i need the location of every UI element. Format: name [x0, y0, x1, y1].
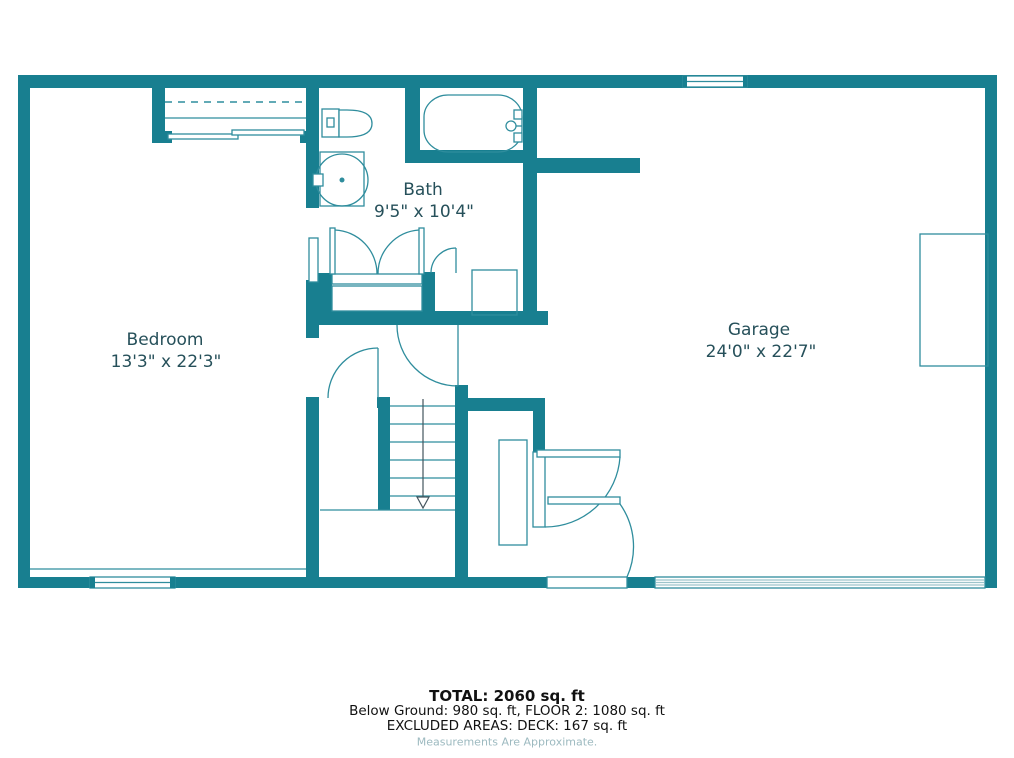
wall-garage-stub	[537, 158, 640, 173]
footer-excluded-areas: EXCLUDED AREAS: DECK: 167 sq. ft	[387, 718, 627, 734]
wall-vestibule-east	[533, 411, 545, 452]
wall-stairs-west	[378, 397, 390, 510]
garage-label: Garage	[728, 320, 790, 340]
garage-dimensions: 24'0" x 22'7"	[706, 342, 817, 362]
chase-box	[472, 270, 517, 315]
wall-bedroom-east-upper	[306, 85, 319, 208]
floor-plan-page: Bedroom 13'3" x 22'3" Bath 9'5" x 10'4" …	[0, 0, 1014, 758]
wall-tub-left	[405, 85, 420, 158]
vestibule-garage-features	[499, 234, 988, 577]
wall-bedroom-east-lower	[306, 397, 319, 577]
garage-entry-threshold	[533, 452, 545, 527]
hall-small-door	[431, 248, 456, 273]
bath-double-doors	[330, 228, 424, 284]
wall-exterior-right	[985, 75, 997, 588]
footer-disclaimer: Measurements Are Approximate.	[417, 736, 598, 749]
hall-features	[320, 248, 517, 510]
bath-linen-closet	[332, 286, 422, 311]
bath-label: Bath	[403, 180, 443, 200]
wall-vestibule-north	[458, 398, 545, 411]
closet-sliding-door-left	[168, 134, 238, 139]
entry-door-threshold	[547, 577, 627, 588]
garage-workbench	[920, 234, 988, 366]
wall-stairs-east	[455, 385, 468, 577]
bathtub	[424, 95, 522, 152]
wall-bedroom-east-mid	[306, 280, 319, 338]
wall-hall-north	[313, 311, 548, 325]
sink	[313, 152, 368, 206]
bath-dimensions: 9'5" x 10'4"	[374, 202, 474, 222]
wall-exterior-left	[18, 75, 30, 588]
bedroom-closet	[165, 102, 306, 139]
rear-entry-door	[548, 497, 634, 577]
bedroom-dimensions: 13'3" x 22'3"	[111, 352, 222, 372]
bedroom-label: Bedroom	[127, 330, 204, 350]
bedroom-door	[328, 348, 378, 398]
toilet	[322, 109, 372, 137]
wall-bath-east	[523, 85, 537, 325]
closet-sliding-door-right	[232, 130, 304, 135]
hall-door	[397, 325, 458, 386]
footer-floor-areas: Below Ground: 980 sq. ft, FLOOR 2: 1080 …	[349, 703, 665, 719]
wall-understairs-closet-jamb	[377, 397, 390, 408]
stairs-down-arrow	[417, 497, 429, 508]
garage-door	[655, 577, 985, 588]
bedroom-window	[90, 577, 175, 588]
garage-entry-door	[533, 450, 620, 527]
garage-window	[683, 76, 747, 87]
water-heater	[499, 440, 527, 545]
bedroom-pocket-door	[309, 238, 318, 282]
wall-bath-closet-jamb-right	[422, 272, 435, 312]
bath-doors-threshold	[332, 274, 422, 284]
